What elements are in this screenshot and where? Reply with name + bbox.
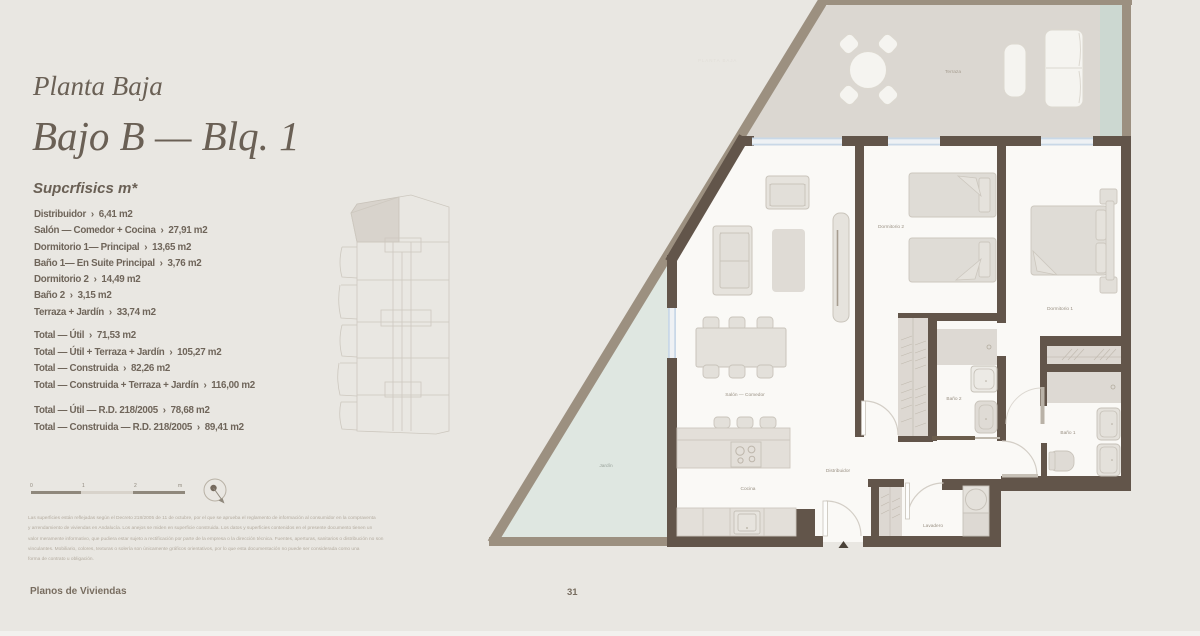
- svg-text:1: 1: [82, 483, 85, 489]
- svg-text:Salón — Comedor: Salón — Comedor: [725, 392, 765, 398]
- svg-text:Distribuidor: Distribuidor: [826, 468, 851, 474]
- svg-text:Lavadero: Lavadero: [923, 523, 943, 529]
- svg-text:m: m: [178, 483, 182, 489]
- svg-text:Cocina: Cocina: [741, 486, 756, 492]
- svg-text:Terraza: Terraza: [945, 69, 961, 75]
- svg-text:Dormitorio 2: Dormitorio 2: [878, 224, 904, 230]
- svg-text:2: 2: [134, 483, 137, 489]
- svg-text:Baño 2: Baño 2: [946, 396, 962, 402]
- svg-text:0: 0: [30, 483, 33, 489]
- svg-text:Baño 1: Baño 1: [1060, 430, 1076, 436]
- svg-text:Jardín: Jardín: [599, 463, 613, 469]
- svg-text:Dormitorio 1: Dormitorio 1: [1047, 306, 1073, 312]
